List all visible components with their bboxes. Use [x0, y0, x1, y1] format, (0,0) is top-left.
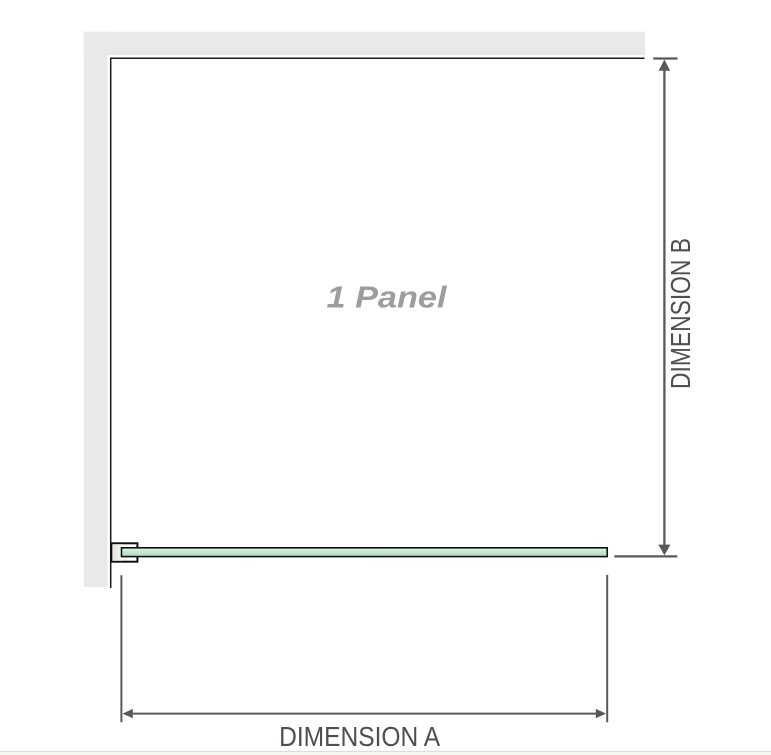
- svg-text:DIMENSION B: DIMENSION B: [665, 238, 696, 389]
- svg-text:DIMENSION A: DIMENSION A: [279, 721, 441, 752]
- svg-text:1 Panel: 1 Panel: [327, 280, 449, 315]
